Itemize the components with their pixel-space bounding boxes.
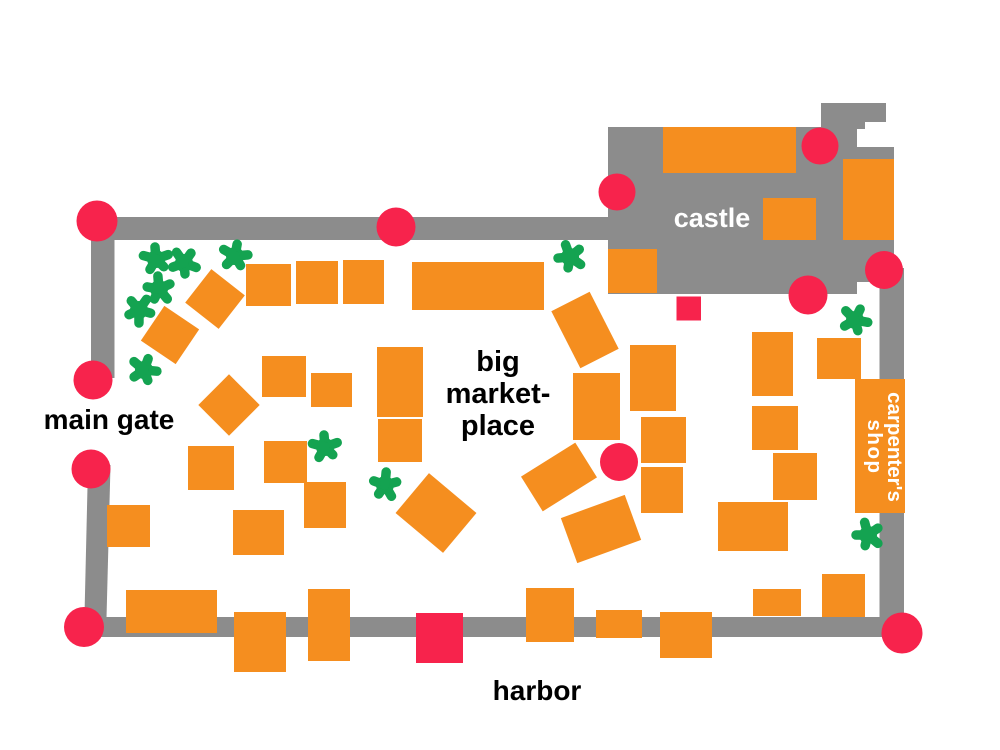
svg-text:big: big <box>476 346 520 378</box>
svg-text:market-: market- <box>446 378 551 410</box>
svg-text:main gate: main gate <box>44 404 175 435</box>
svg-text:harbor: harbor <box>493 675 582 706</box>
svg-text:shop: shop <box>863 420 886 475</box>
svg-text:castle: castle <box>674 203 751 233</box>
svg-text:place: place <box>461 410 535 442</box>
